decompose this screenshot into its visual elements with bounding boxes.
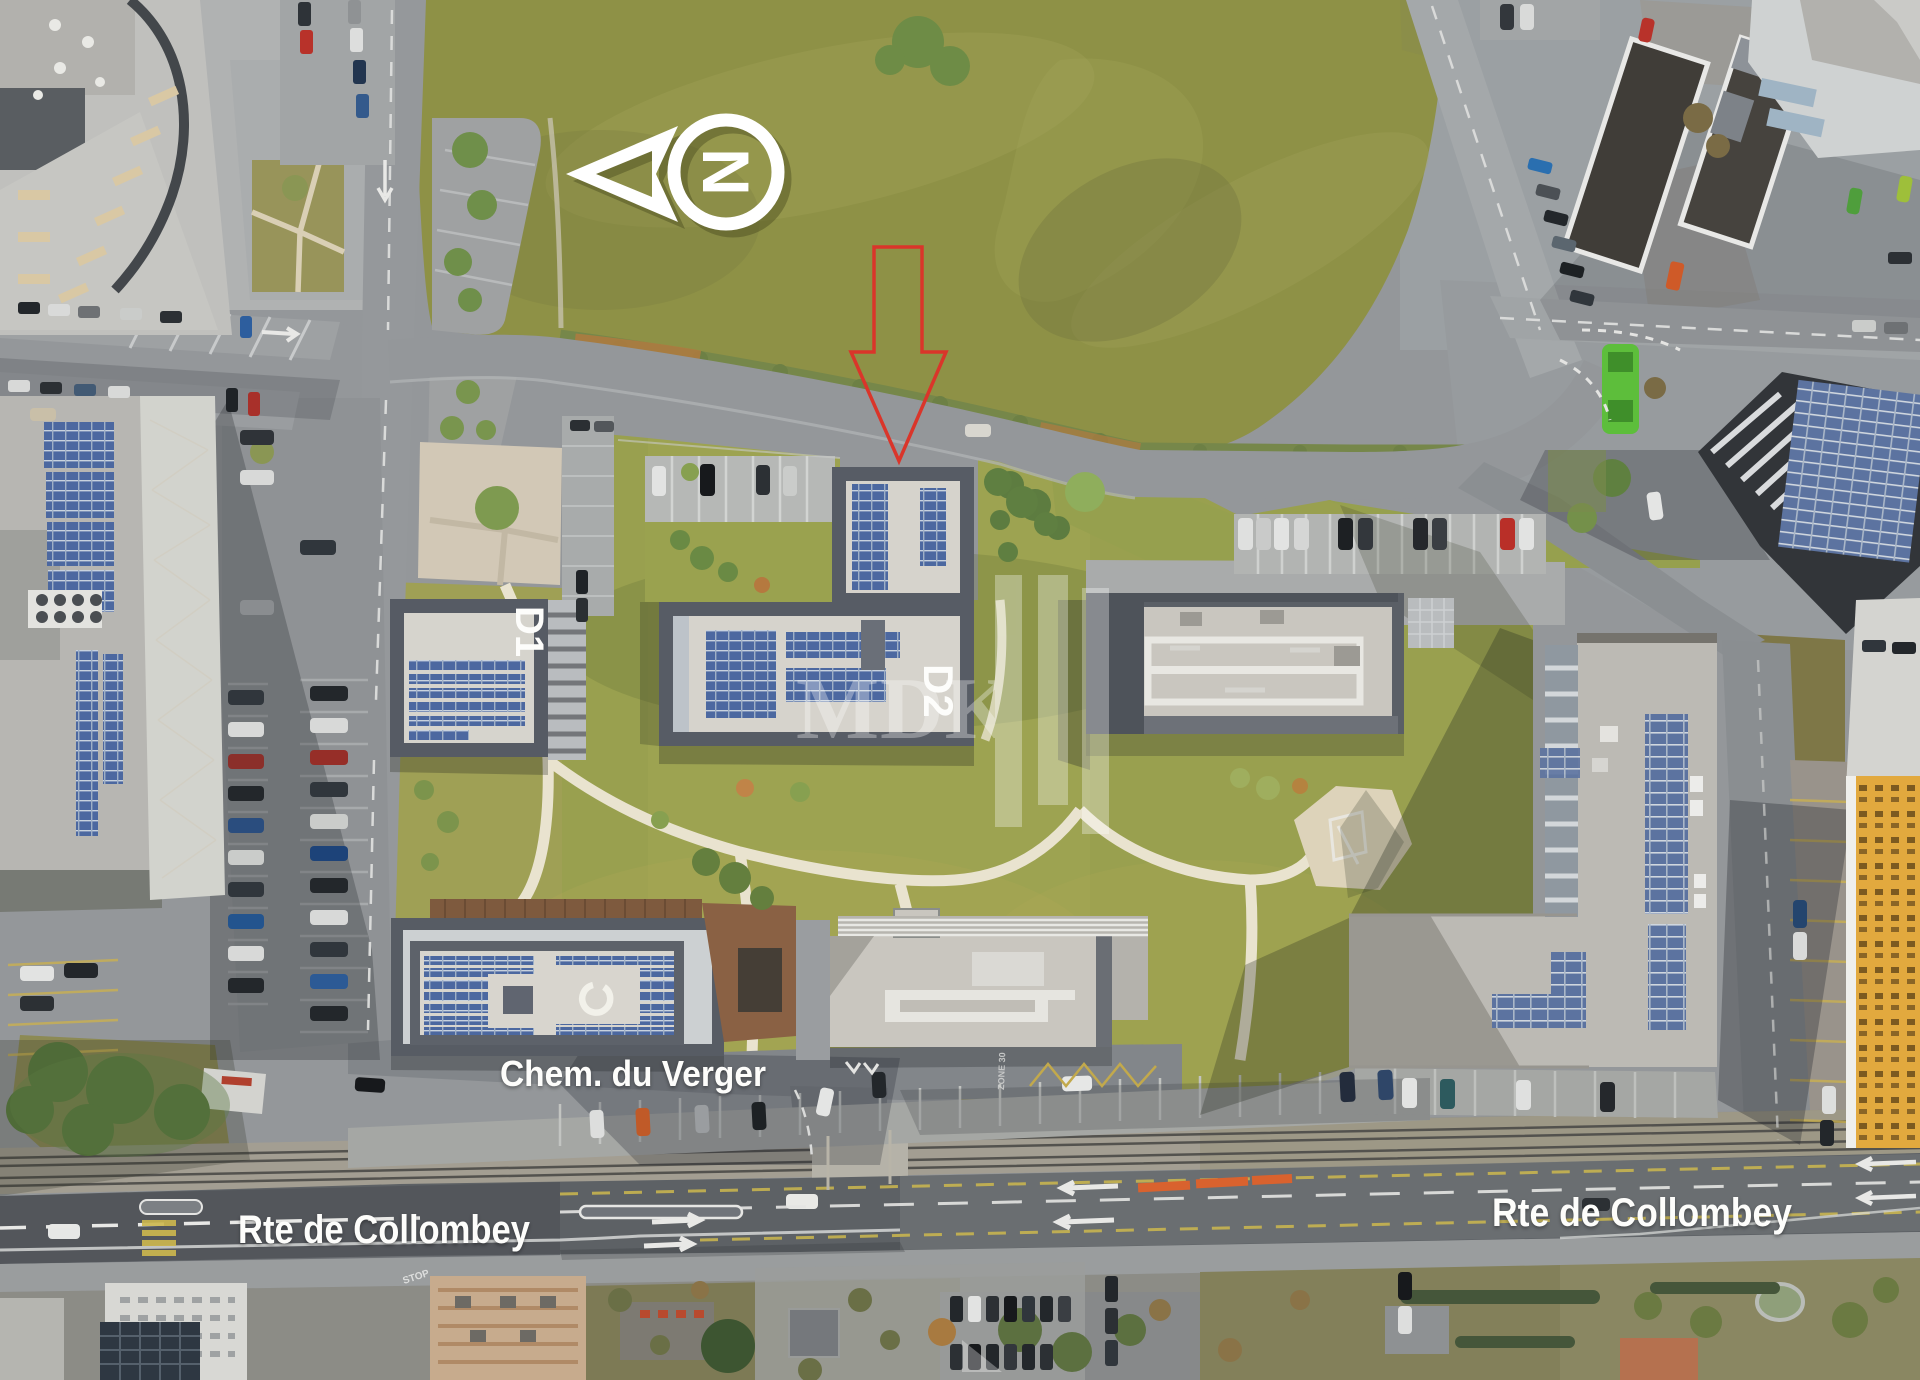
svg-text:Rte de Collombey: Rte de Collombey	[1492, 1191, 1793, 1235]
svg-text:D1: D1	[507, 606, 551, 657]
svg-text:Chem. du Verger: Chem. du Verger	[500, 1053, 766, 1094]
svg-text:N: N	[689, 148, 763, 196]
svg-text:D2: D2	[915, 664, 962, 718]
svg-text:MDK: MDK	[796, 661, 1014, 758]
svg-text:ZONE 30: ZONE 30	[996, 1052, 1007, 1090]
svg-text:Rte de Collombey: Rte de Collombey	[238, 1208, 531, 1252]
